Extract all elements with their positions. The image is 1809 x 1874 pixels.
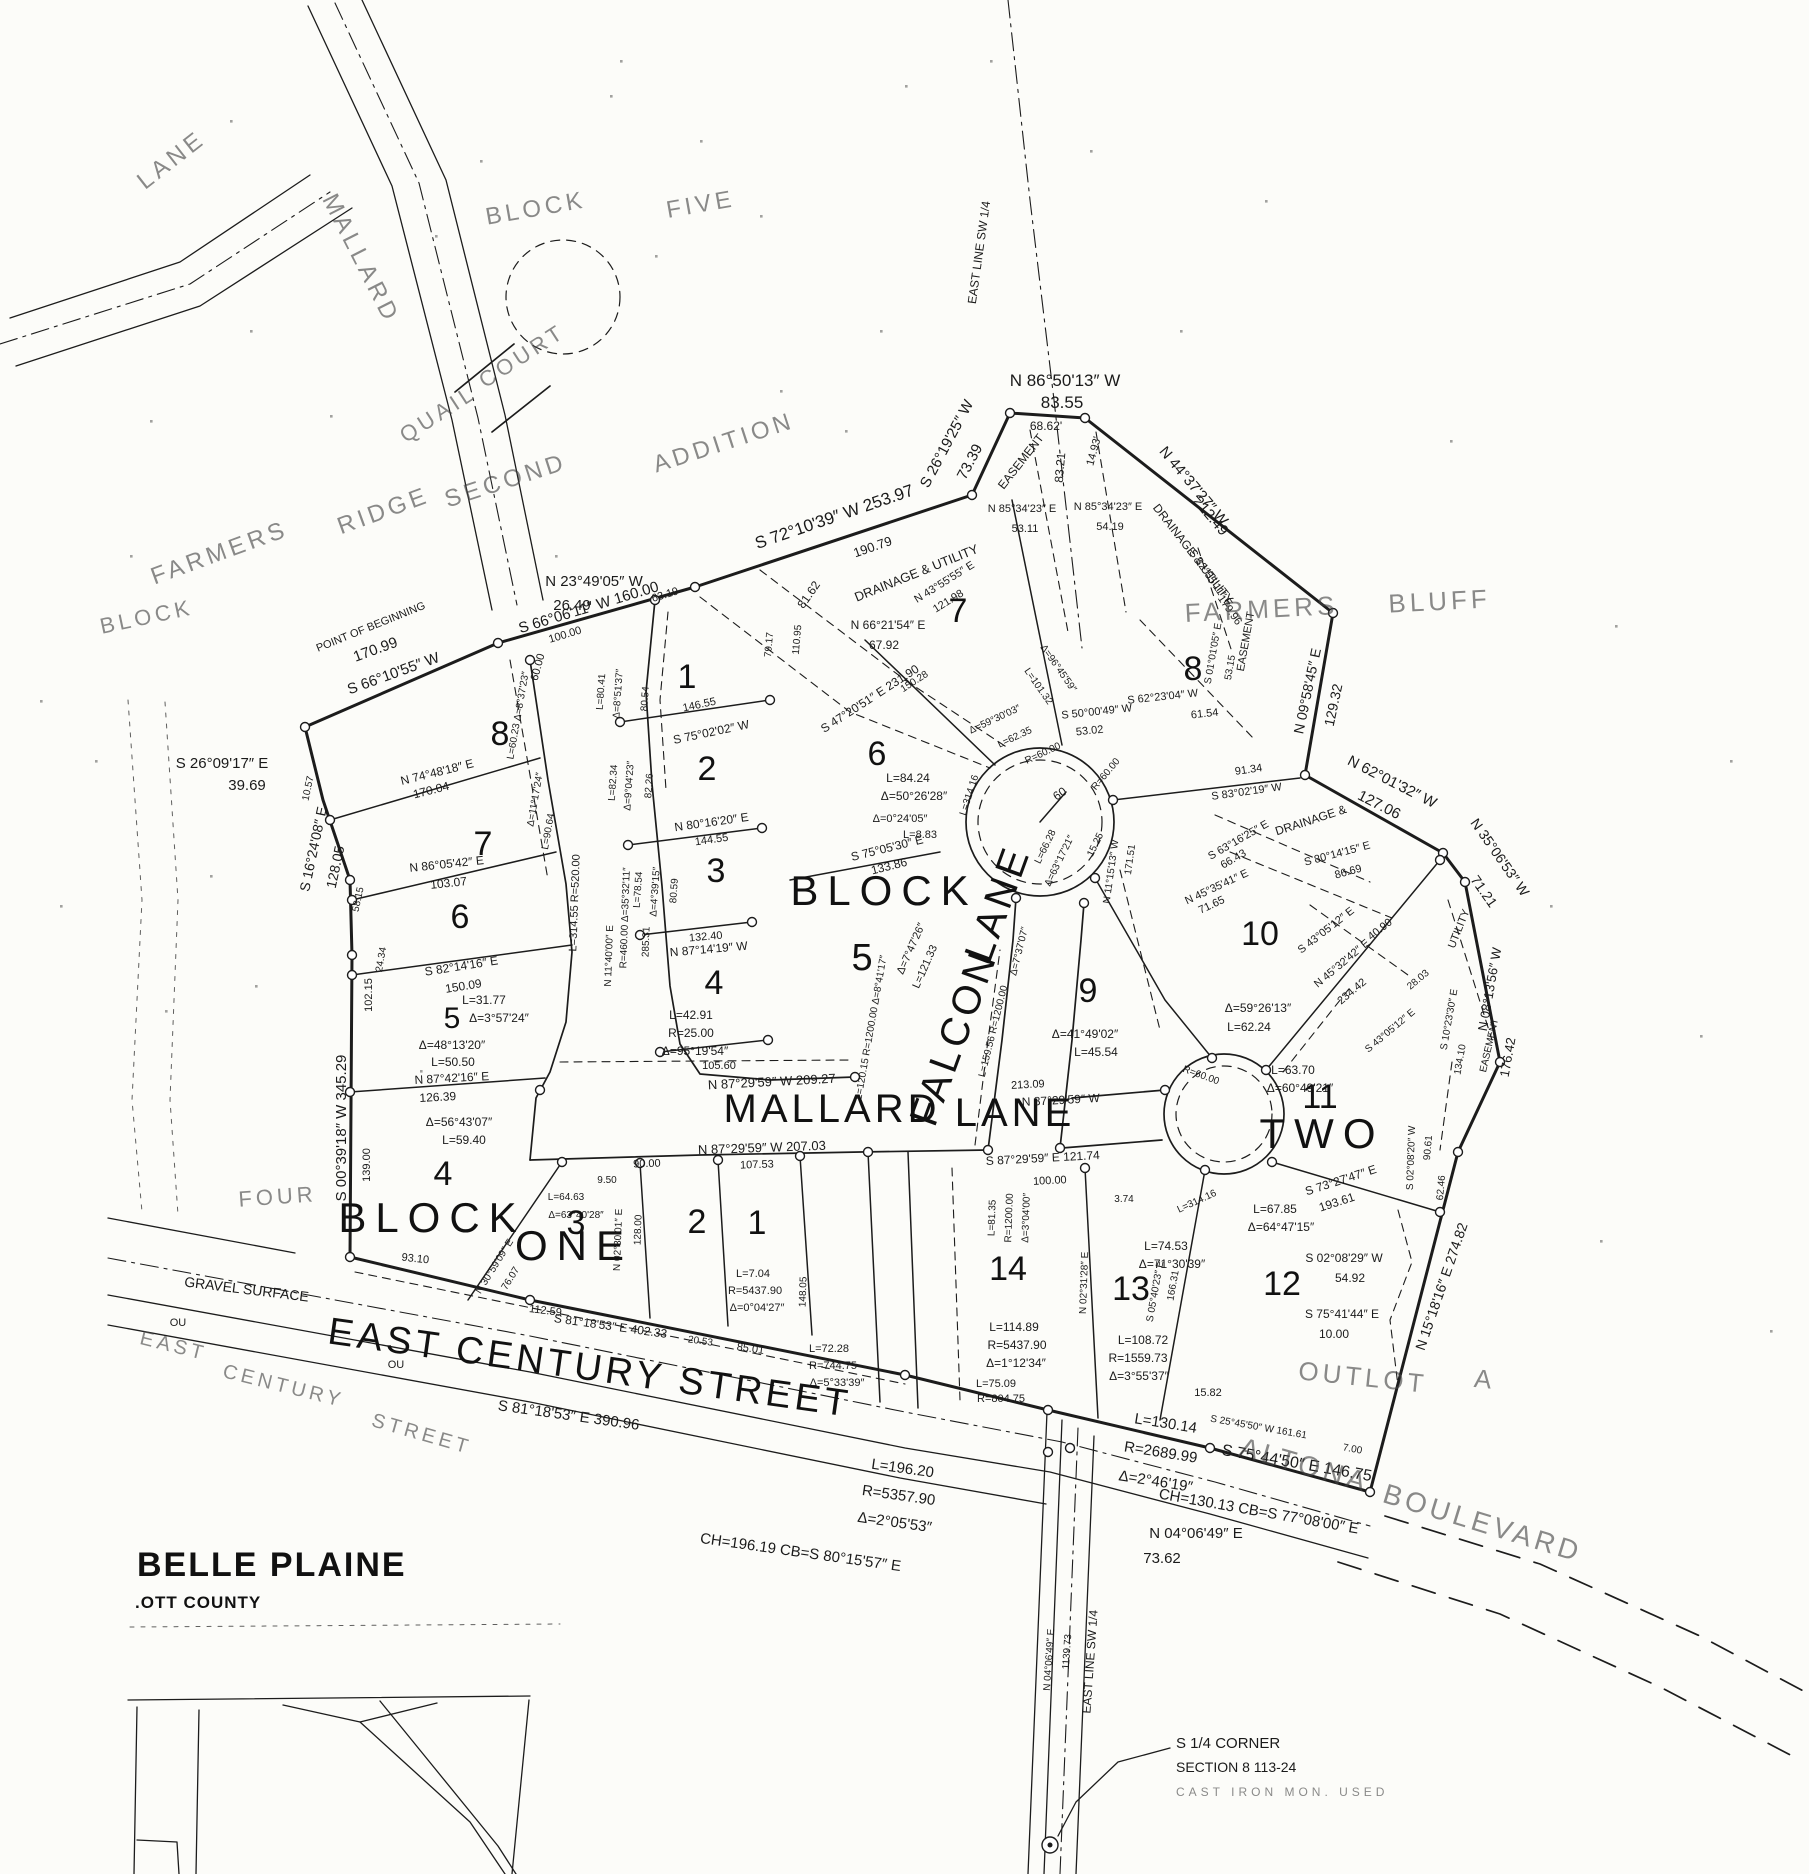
survey-annotation: Δ=0°04'27″ — [730, 1302, 785, 1314]
survey-annotation: 61.54 — [1190, 707, 1219, 722]
faded-label: FOUR — [238, 1181, 318, 1211]
survey-annotation: Δ=2°05'53″ — [856, 1509, 933, 1536]
survey-annotation: N 87°29'59″ W — [1021, 1091, 1100, 1109]
survey-annotation: 81.62 — [794, 578, 823, 611]
survey-annotation: S 02°08'29″ W — [1305, 1251, 1383, 1265]
survey-annotation: L=90.64 — [540, 812, 557, 850]
survey-annotation: 15.25 — [1085, 831, 1106, 859]
survey-annotation: OU — [170, 1317, 187, 1329]
scan-speck — [1770, 1330, 1773, 1333]
survey-annotation: DRAINAGE & — [1273, 802, 1348, 838]
survey-annotation: Δ=0°24'05″ — [873, 813, 928, 825]
survey-annotation: R=5437.90 — [987, 1338, 1046, 1352]
survey-annotation: R=744.75 — [809, 1360, 857, 1372]
road-edge-line — [108, 1218, 295, 1253]
cul-de-sac-circle — [1176, 1066, 1272, 1162]
faded-label: FIVE — [664, 185, 737, 224]
survey-annotation: S 75°02'02″ W — [672, 717, 751, 747]
faded-label: BLOCK — [483, 187, 588, 231]
monument-point — [346, 876, 355, 885]
monument-point — [766, 696, 775, 705]
survey-annotation: 20.53 — [687, 1334, 714, 1348]
quarter-corner-monument-dot — [1048, 1843, 1053, 1848]
scan-speck — [610, 95, 613, 98]
plat-document: N 86°50'13″ W83.5568.62'S 26°19'25″ W73.… — [0, 0, 1809, 1874]
survey-annotation: 85.01 — [736, 1341, 765, 1357]
scan-speck — [435, 235, 438, 238]
road-edge-line — [512, 1700, 529, 1874]
survey-annotation: 166.31 — [1165, 1269, 1181, 1301]
scan-speck — [1180, 330, 1183, 333]
scan-speck — [1700, 1035, 1703, 1038]
lot-line — [1266, 860, 1440, 1070]
survey-annotation: 79.17 — [763, 631, 776, 657]
lot-line — [908, 1152, 918, 1408]
survey-annotation: N 85°34'23″ E — [1074, 501, 1143, 513]
monument-point — [346, 1253, 355, 1262]
survey-annotation: 107.53 — [740, 1158, 774, 1171]
faded-label: BOULEVARD — [1379, 1478, 1586, 1568]
survey-annotation: 9.50 — [597, 1175, 617, 1186]
survey-annotation: 83.55 — [1041, 393, 1084, 412]
survey-annotation: 10.57 — [301, 775, 317, 802]
lot-number: 6 — [451, 898, 470, 936]
road-edge-line — [137, 1840, 179, 1874]
survey-annotation: L=80.41 — [595, 673, 609, 711]
survey-annotation: L=74.53 — [1144, 1239, 1188, 1253]
scan-speck — [700, 140, 703, 143]
plat-map: N 86°50'13″ W83.5568.62'S 26°19'25″ W73.… — [0, 0, 1809, 1874]
survey-annotation: 3.74 — [1114, 1194, 1134, 1205]
block-name: BLOCK — [338, 1194, 525, 1241]
scan-speck — [255, 985, 258, 988]
faded-label: OUTLOT — [1297, 1355, 1429, 1398]
survey-annotation: L=314.55 R=520.00 — [567, 854, 582, 952]
faded-label: CENTURY — [220, 1360, 346, 1411]
boulevard-dashed-line — [1385, 1516, 1809, 1694]
survey-annotation: R=5437.90 — [728, 1285, 782, 1297]
survey-annotation: L=108.72 — [1118, 1333, 1169, 1347]
survey-annotation: L=314.16 — [958, 773, 982, 817]
road-edge-line — [360, 1722, 505, 1874]
survey-annotation: 71.21 — [1467, 872, 1500, 910]
monument-point — [1161, 1086, 1170, 1095]
survey-annotation: S 75°41'44″ E — [1305, 1307, 1379, 1321]
faded-label: ADDITION — [650, 407, 798, 478]
street-right-of-way-line — [530, 660, 572, 1160]
survey-annotation: S 62°23'04″ W — [1127, 687, 1199, 706]
survey-annotation: N 02°30'01″ E — [612, 1208, 625, 1271]
monument-point — [758, 824, 767, 833]
monument-point — [1436, 856, 1445, 865]
city-title: BELLE PLAINE — [137, 1546, 407, 1584]
easement-dashed-line — [952, 1168, 960, 1400]
survey-annotation: L=67.85 — [1253, 1202, 1297, 1216]
scan-speck — [1730, 760, 1733, 763]
survey-annotation: N 02°31'28″ E — [1078, 1251, 1091, 1314]
survey-annotation: S 00°39'18″ W 345.29 — [333, 1055, 350, 1202]
boulevard-dashed-line — [1338, 1562, 1800, 1760]
survey-annotation: N 15°18'16″ E 274.82 — [1412, 1220, 1471, 1352]
monument-point — [1268, 1158, 1277, 1167]
easement-dashed-line — [700, 597, 990, 768]
survey-annotation: N 87°29'59″ W 207.03 — [698, 1138, 826, 1157]
scan-speck — [620, 60, 623, 63]
survey-annotation: L=45.54 — [1074, 1045, 1118, 1059]
monument-point — [494, 639, 503, 648]
scan-speck — [780, 390, 783, 393]
scan-speck — [130, 555, 133, 558]
survey-annotation: L=84.24 — [886, 771, 930, 785]
monument-point — [536, 1086, 545, 1095]
scan-speck — [1450, 440, 1453, 443]
monument-point — [348, 971, 357, 980]
monument-point — [1081, 1164, 1090, 1173]
survey-annotation: N 87°14'19″ W — [669, 939, 749, 960]
survey-annotation: 15.82 — [1194, 1387, 1222, 1399]
survey-annotation: 86.69 — [1333, 863, 1363, 882]
county-title: .OTT COUNTY — [135, 1593, 261, 1612]
road-edge-line — [283, 1703, 437, 1722]
street-right-of-way-line — [492, 386, 550, 432]
faded-label: BLUFF — [1388, 583, 1492, 618]
survey-annotation: Δ=11°17'24″ — [525, 771, 545, 827]
survey-annotation: 58.15 — [351, 886, 367, 913]
lot-number: 8 — [1184, 650, 1203, 688]
survey-annotation: L=42.91 — [669, 1008, 713, 1022]
old-plat-dashed-line — [130, 1624, 560, 1627]
survey-annotation: 80.54 — [639, 686, 652, 712]
survey-annotation: 28.03 — [1405, 968, 1432, 993]
monument-point — [1044, 1406, 1053, 1415]
lot-number: 4 — [705, 964, 724, 1002]
survey-annotation: Δ=41°49'02″ — [1052, 1027, 1119, 1041]
old-plat-dashed-line — [165, 702, 178, 1215]
survey-annotation: 7.00 — [1342, 1442, 1364, 1456]
survey-annotation: Δ=95°19'54″ — [662, 1044, 729, 1058]
survey-annotation: 139.00 — [361, 1148, 373, 1182]
survey-annotation: 128.05 — [323, 844, 348, 889]
section-centerline — [1008, 0, 1082, 648]
survey-annotation: N 11°15'13″ W — [1102, 838, 1122, 904]
street-name: MALLARD — [724, 1087, 941, 1131]
faded-label: LANE — [132, 125, 211, 195]
survey-annotation: EAST LINE SW 1/4 — [1079, 1609, 1100, 1714]
scan-speck — [60, 905, 63, 908]
survey-annotation: L=62.35 — [996, 725, 1034, 751]
survey-annotation: 103.07 — [430, 874, 468, 892]
scan-speck — [230, 120, 233, 123]
survey-annotation: 134.10 — [1452, 1043, 1468, 1075]
road-edge-line — [134, 1707, 137, 1874]
road-edge-line — [196, 1710, 199, 1874]
lot-number: 7 — [949, 592, 968, 630]
survey-annotation: N 85°34'23″ E — [988, 503, 1057, 515]
survey-annotation: Δ=64°47'15″ — [1248, 1220, 1315, 1234]
survey-annotation: 193.61 — [1317, 1190, 1357, 1215]
lot-number: 13 — [1112, 1270, 1150, 1308]
survey-annotation: Δ=60°49'21″ — [1267, 1081, 1334, 1095]
scan-speck — [165, 1010, 168, 1013]
monument-point — [1006, 409, 1015, 418]
scan-speck — [905, 85, 908, 88]
survey-annotation: 285.31 — [640, 926, 652, 957]
monument-point — [1301, 771, 1310, 780]
survey-annotation: Δ=9°04'23″ — [622, 760, 636, 811]
scan-speck — [480, 160, 483, 163]
survey-annotation: 146.55 — [682, 696, 717, 715]
easement-dashed-line — [660, 612, 668, 790]
scan-speck — [555, 555, 558, 558]
faded-label: QUAIL — [395, 380, 481, 448]
monument-point — [1436, 1208, 1445, 1217]
monument-point — [968, 491, 977, 500]
survey-annotation: 73.62 — [1143, 1550, 1181, 1567]
scan-speck — [760, 215, 763, 218]
survey-annotation: 105.60 — [702, 1060, 736, 1072]
survey-annotation: 128.00 — [632, 1214, 644, 1245]
faded-label: CAST IRON MON. USED — [1176, 1785, 1388, 1799]
survey-annotation: S 01°01'05″ E — [1203, 622, 1225, 685]
survey-annotation: N 86°50'13″ W — [1010, 371, 1121, 390]
lot-number: 9 — [1079, 972, 1098, 1010]
survey-annotation: S 50°00'49″ W — [1061, 702, 1133, 721]
survey-annotation: Δ=8°51'37″ — [611, 668, 625, 719]
survey-annotation: 90.61 — [1422, 1134, 1435, 1160]
survey-annotation: L=82.34 — [607, 764, 621, 802]
survey-annotation: L=78.54 — [632, 871, 646, 909]
scan-speck — [880, 330, 883, 333]
scan-speck — [40, 700, 43, 703]
survey-annotation: 93.10 — [401, 1252, 430, 1267]
scan-speck — [210, 875, 213, 878]
monument-point — [764, 1036, 773, 1045]
lot-number: 1 — [748, 1204, 767, 1242]
survey-annotation: S 81°18'53″ E 390.96 — [497, 1397, 641, 1434]
survey-annotation: 53.02 — [1075, 724, 1104, 739]
survey-annotation: Δ=71°30'39″ — [1139, 1257, 1206, 1271]
survey-annotation: GRAVEL SURFACE — [183, 1273, 309, 1304]
faded-label: COURT — [474, 319, 570, 393]
survey-annotation: Δ=63°40'28″ — [548, 1210, 604, 1221]
survey-annotation: L=72.28 — [809, 1343, 849, 1355]
lot-line — [868, 1152, 880, 1402]
survey-annotation: Δ=56°43'07″ — [426, 1115, 493, 1129]
survey-annotation: R=1559.73 — [1108, 1351, 1167, 1365]
monument-point — [691, 583, 700, 592]
survey-annotation: L=81.35 — [986, 1199, 998, 1236]
scan-speck — [990, 60, 993, 63]
faded-label: ALTONA — [1236, 1432, 1373, 1499]
survey-annotation: Δ=3°04'00″ — [1020, 1192, 1033, 1243]
monument-point — [1262, 1066, 1271, 1075]
monument-point — [558, 1158, 567, 1167]
lot-number: 10 — [1241, 915, 1279, 953]
survey-annotation: N 04°06'49″ E — [1149, 1525, 1242, 1542]
easement-dashed-line — [1120, 870, 1160, 1030]
survey-annotation: Δ=59°26'13″ — [1225, 1001, 1292, 1015]
scan-speck — [150, 420, 153, 423]
faded-label: BLOCK — [98, 595, 196, 639]
survey-annotation: 39.69 — [228, 777, 266, 794]
monument-point — [1206, 1444, 1215, 1453]
scan-speck — [1600, 1240, 1603, 1243]
survey-annotation: 100.00 — [1033, 1174, 1067, 1188]
lot-number: 3 — [707, 852, 726, 890]
lot-number: 6 — [868, 735, 887, 773]
survey-annotation: SECTION 8 113-24 — [1176, 1759, 1297, 1775]
monument-point — [864, 1148, 873, 1157]
survey-annotation: 126.39 — [419, 1089, 457, 1105]
survey-annotation: 80.59 — [668, 878, 681, 904]
survey-annotation: 62.46 — [1435, 1174, 1448, 1200]
monument-point — [748, 918, 757, 927]
monument-point — [1109, 796, 1118, 805]
monument-point — [1080, 899, 1089, 908]
faded-label: RIDGE — [334, 482, 433, 540]
lot-number: 14 — [989, 1250, 1027, 1288]
lot-number: 2 — [688, 1203, 707, 1241]
survey-annotation: R=60.00 — [1090, 756, 1123, 793]
survey-annotation: R=460.00 Δ=35°32'11″ — [618, 867, 633, 969]
survey-annotation: S 1/4 CORNER — [1176, 1735, 1280, 1752]
monument-point — [1066, 1444, 1075, 1453]
survey-annotation: 91.34 — [1234, 762, 1263, 778]
scan-speck — [1550, 905, 1553, 908]
lot-number: 5 — [444, 1002, 461, 1035]
scan-speck — [1265, 200, 1268, 203]
faded-label: EAST — [138, 1327, 210, 1365]
survey-annotation: 171.51 — [1123, 843, 1138, 875]
survey-annotation: Δ=4°39'15″ — [648, 866, 662, 917]
survey-annotation: Δ=3°57'24″ — [469, 1011, 529, 1025]
faded-label: FARMERS — [1184, 590, 1339, 628]
survey-annotation: 10.00 — [1319, 1327, 1349, 1341]
survey-annotation: S 47°20'51″ E 231.90 — [818, 662, 922, 736]
monument-point — [1044, 1448, 1053, 1457]
survey-annotation: N 66°21'54″ E — [851, 618, 926, 632]
survey-annotation: N 11°40'00″ E — [603, 925, 616, 987]
monument-point — [348, 951, 357, 960]
survey-annotation: 53.11 — [1012, 523, 1039, 535]
survey-annotation: 213.09 — [1011, 1078, 1045, 1092]
scan-speck — [95, 760, 98, 763]
survey-annotation: S 43°05'12″ E — [1363, 1007, 1418, 1055]
survey-annotation: EAST LINE SW 1/4 — [965, 200, 993, 305]
lot-number: 2 — [698, 750, 717, 788]
scan-speck — [1615, 625, 1618, 628]
survey-annotation: L=196.20 — [870, 1456, 935, 1482]
survey-annotation: Δ=50°26'28″ — [881, 789, 948, 803]
scan-speck — [250, 330, 253, 333]
survey-annotation: S 26°09'17″ E — [176, 755, 269, 772]
monument-point — [901, 1371, 910, 1380]
survey-annotation: 54.19 — [1096, 521, 1124, 533]
survey-annotation: 144.55 — [694, 832, 729, 849]
road-edge-line — [128, 1696, 530, 1700]
survey-annotation: 40.90 — [1366, 916, 1395, 942]
scan-speck — [330, 415, 333, 418]
monument-point — [624, 841, 633, 850]
survey-annotation: S 82°14'16″ E — [424, 953, 499, 978]
survey-annotation: 110.95 — [791, 624, 805, 655]
survey-annotation: S 43°05'12″ E — [1296, 905, 1357, 956]
monument-point — [714, 1156, 723, 1165]
scan-speck — [845, 430, 848, 433]
monument-point — [1091, 874, 1100, 883]
scan-speck — [1090, 150, 1093, 153]
survey-annotation: OU — [388, 1359, 405, 1371]
survey-annotation: 102.15 — [363, 978, 375, 1012]
survey-annotation: L=63.70 — [1271, 1063, 1315, 1077]
survey-annotation: R=5357.90 — [861, 1482, 936, 1509]
scan-speck — [655, 255, 658, 258]
survey-annotation: Δ=1°12'34″ — [986, 1356, 1046, 1370]
survey-annotation: Δ=48°13'20″ — [419, 1038, 486, 1052]
survey-annotation: R=25.00 — [668, 1026, 714, 1040]
survey-annotation: Δ=3°55'37″ — [1109, 1369, 1169, 1383]
survey-annotation: 1139.73 — [1061, 1633, 1074, 1670]
survey-annotation: N 87°42'16″ E — [414, 1069, 489, 1087]
survey-annotation: 90.00 — [633, 1158, 661, 1171]
monument-point — [1208, 1054, 1217, 1063]
survey-annotation: 54.92 — [1335, 1271, 1365, 1285]
survey-annotation: 190.79 — [851, 533, 893, 560]
road-edge-line — [380, 1701, 516, 1874]
survey-annotation: 176.42 — [1497, 1036, 1519, 1078]
lot-number: 4 — [434, 1155, 453, 1193]
lot-number: 1 — [678, 658, 697, 696]
road-edge-line — [10, 175, 310, 318]
block-name: TWO — [1260, 1110, 1385, 1157]
easement-dashed-line — [1440, 1062, 1452, 1150]
survey-annotation: EASEMENT — [995, 431, 1047, 492]
road-edge-line — [16, 208, 352, 366]
faded-label: FARMERS — [147, 516, 292, 591]
survey-annotation: UTILITY — [1446, 907, 1473, 950]
lot-number: 5 — [851, 937, 872, 979]
survey-annotation: CH=196.19 CB=S 80°15'57″ E — [699, 1530, 902, 1575]
faded-label: MALLARD — [317, 189, 405, 327]
survey-annotation: 129.32 — [1321, 682, 1346, 727]
survey-annotation: S 80°14'15″ E — [1303, 840, 1372, 869]
road-edge-line — [1058, 1748, 1170, 1836]
lot-number: 12 — [1263, 1265, 1301, 1303]
faded-label: STREET — [369, 1409, 474, 1459]
survey-annotation: N 04°06'49″ E — [1042, 1628, 1057, 1691]
survey-annotation: R=804.75 — [977, 1393, 1025, 1405]
survey-annotation: L=31.77 — [462, 993, 506, 1007]
section-centerline — [0, 192, 330, 344]
survey-annotation: 60 — [1050, 784, 1069, 803]
lot-line — [718, 1160, 728, 1326]
survey-annotation: 148.05 — [797, 1276, 809, 1307]
old-plat-dashed-line — [128, 700, 142, 1212]
survey-annotation: 83.21 — [1052, 452, 1069, 483]
survey-annotation: 24.34 — [374, 946, 389, 973]
survey-annotation: L=7.04 — [736, 1268, 770, 1280]
survey-annotation: S 02°08'20″ W — [1405, 1125, 1418, 1190]
survey-annotation: 67.92 — [869, 638, 899, 652]
faded-label: A — [1473, 1363, 1497, 1395]
survey-annotation: S 10°23'30″ E — [1439, 988, 1461, 1051]
monument-point — [301, 723, 310, 732]
survey-annotation: L=64.63 — [548, 1192, 585, 1203]
road-edge-line — [1028, 1412, 1047, 1874]
survey-annotation: L=62.24 — [1227, 1020, 1271, 1034]
survey-annotation: R=1200.00 — [1003, 1193, 1016, 1243]
survey-annotation: L=114.89 — [989, 1320, 1039, 1334]
